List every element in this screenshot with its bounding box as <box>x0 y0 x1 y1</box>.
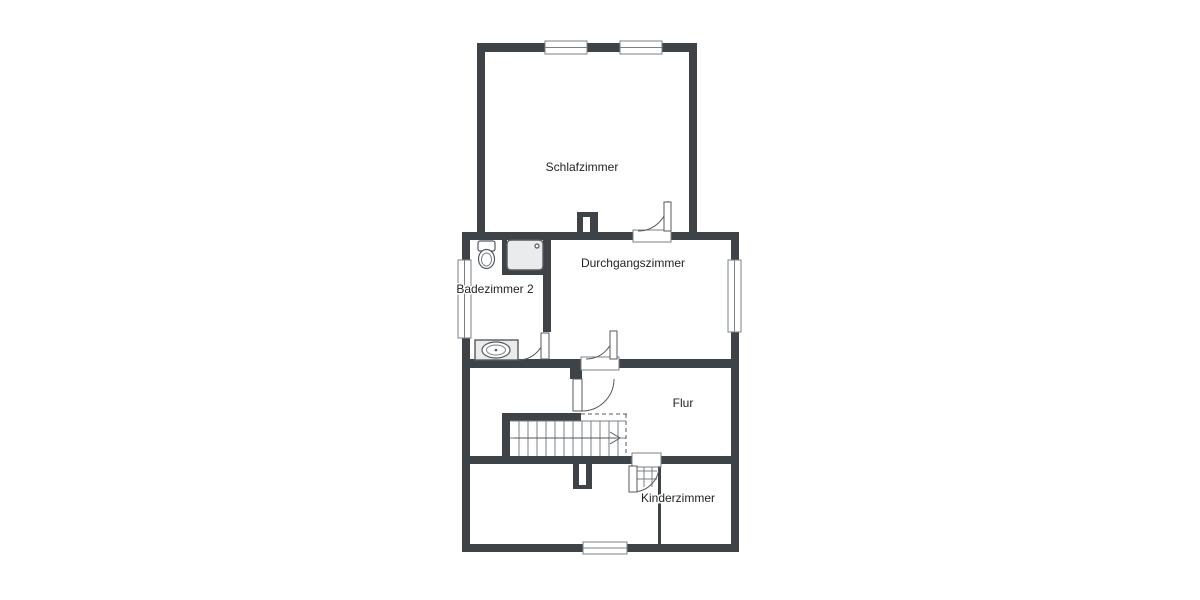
room-label-badezimmer: Badezimmer 2 <box>456 282 534 296</box>
wall <box>689 43 697 232</box>
wall <box>462 232 634 240</box>
window <box>728 260 741 332</box>
door-badezimmer <box>518 333 549 360</box>
wall <box>477 43 485 232</box>
floor-plan-page: Schlafzimmer Durchgangszimmer Badezimmer… <box>0 0 1200 600</box>
room-label-schlafzimmer: Schlafzimmer <box>546 160 619 174</box>
room-label-flur: Flur <box>673 396 694 410</box>
windows <box>458 41 741 554</box>
sink-icon <box>475 340 518 360</box>
bath-fixtures <box>475 240 543 360</box>
room-labels: Schlafzimmer Durchgangszimmer Badezimmer… <box>456 160 715 505</box>
window <box>583 542 627 554</box>
toilet-icon <box>478 241 495 269</box>
wall <box>462 456 633 464</box>
door-durchgangszimmer <box>581 331 619 370</box>
wall <box>659 456 739 464</box>
chimney-wall <box>590 212 598 232</box>
door-kinderzimmer <box>629 453 661 492</box>
window <box>458 260 471 338</box>
door-schlafzimmer <box>633 201 671 242</box>
room-label-durchgangszimmer: Durchgangszimmer <box>581 256 685 270</box>
walls <box>462 43 739 552</box>
chimney-top <box>577 212 598 232</box>
window <box>620 41 662 54</box>
door-flur-stairs <box>573 379 614 411</box>
wall <box>502 413 581 421</box>
shower-icon <box>507 240 543 270</box>
wall <box>618 359 739 368</box>
wall <box>670 232 739 240</box>
chimney-bottom <box>573 464 592 489</box>
window <box>545 41 587 54</box>
room-label-kinderzimmer: Kinderzimmer <box>641 491 715 505</box>
chimney-wall <box>573 485 592 489</box>
chimney-wall <box>577 212 583 232</box>
floor-plan: Schlafzimmer Durchgangszimmer Badezimmer… <box>0 0 1200 600</box>
wall <box>570 368 582 379</box>
wall <box>543 240 551 332</box>
wall <box>502 413 510 456</box>
